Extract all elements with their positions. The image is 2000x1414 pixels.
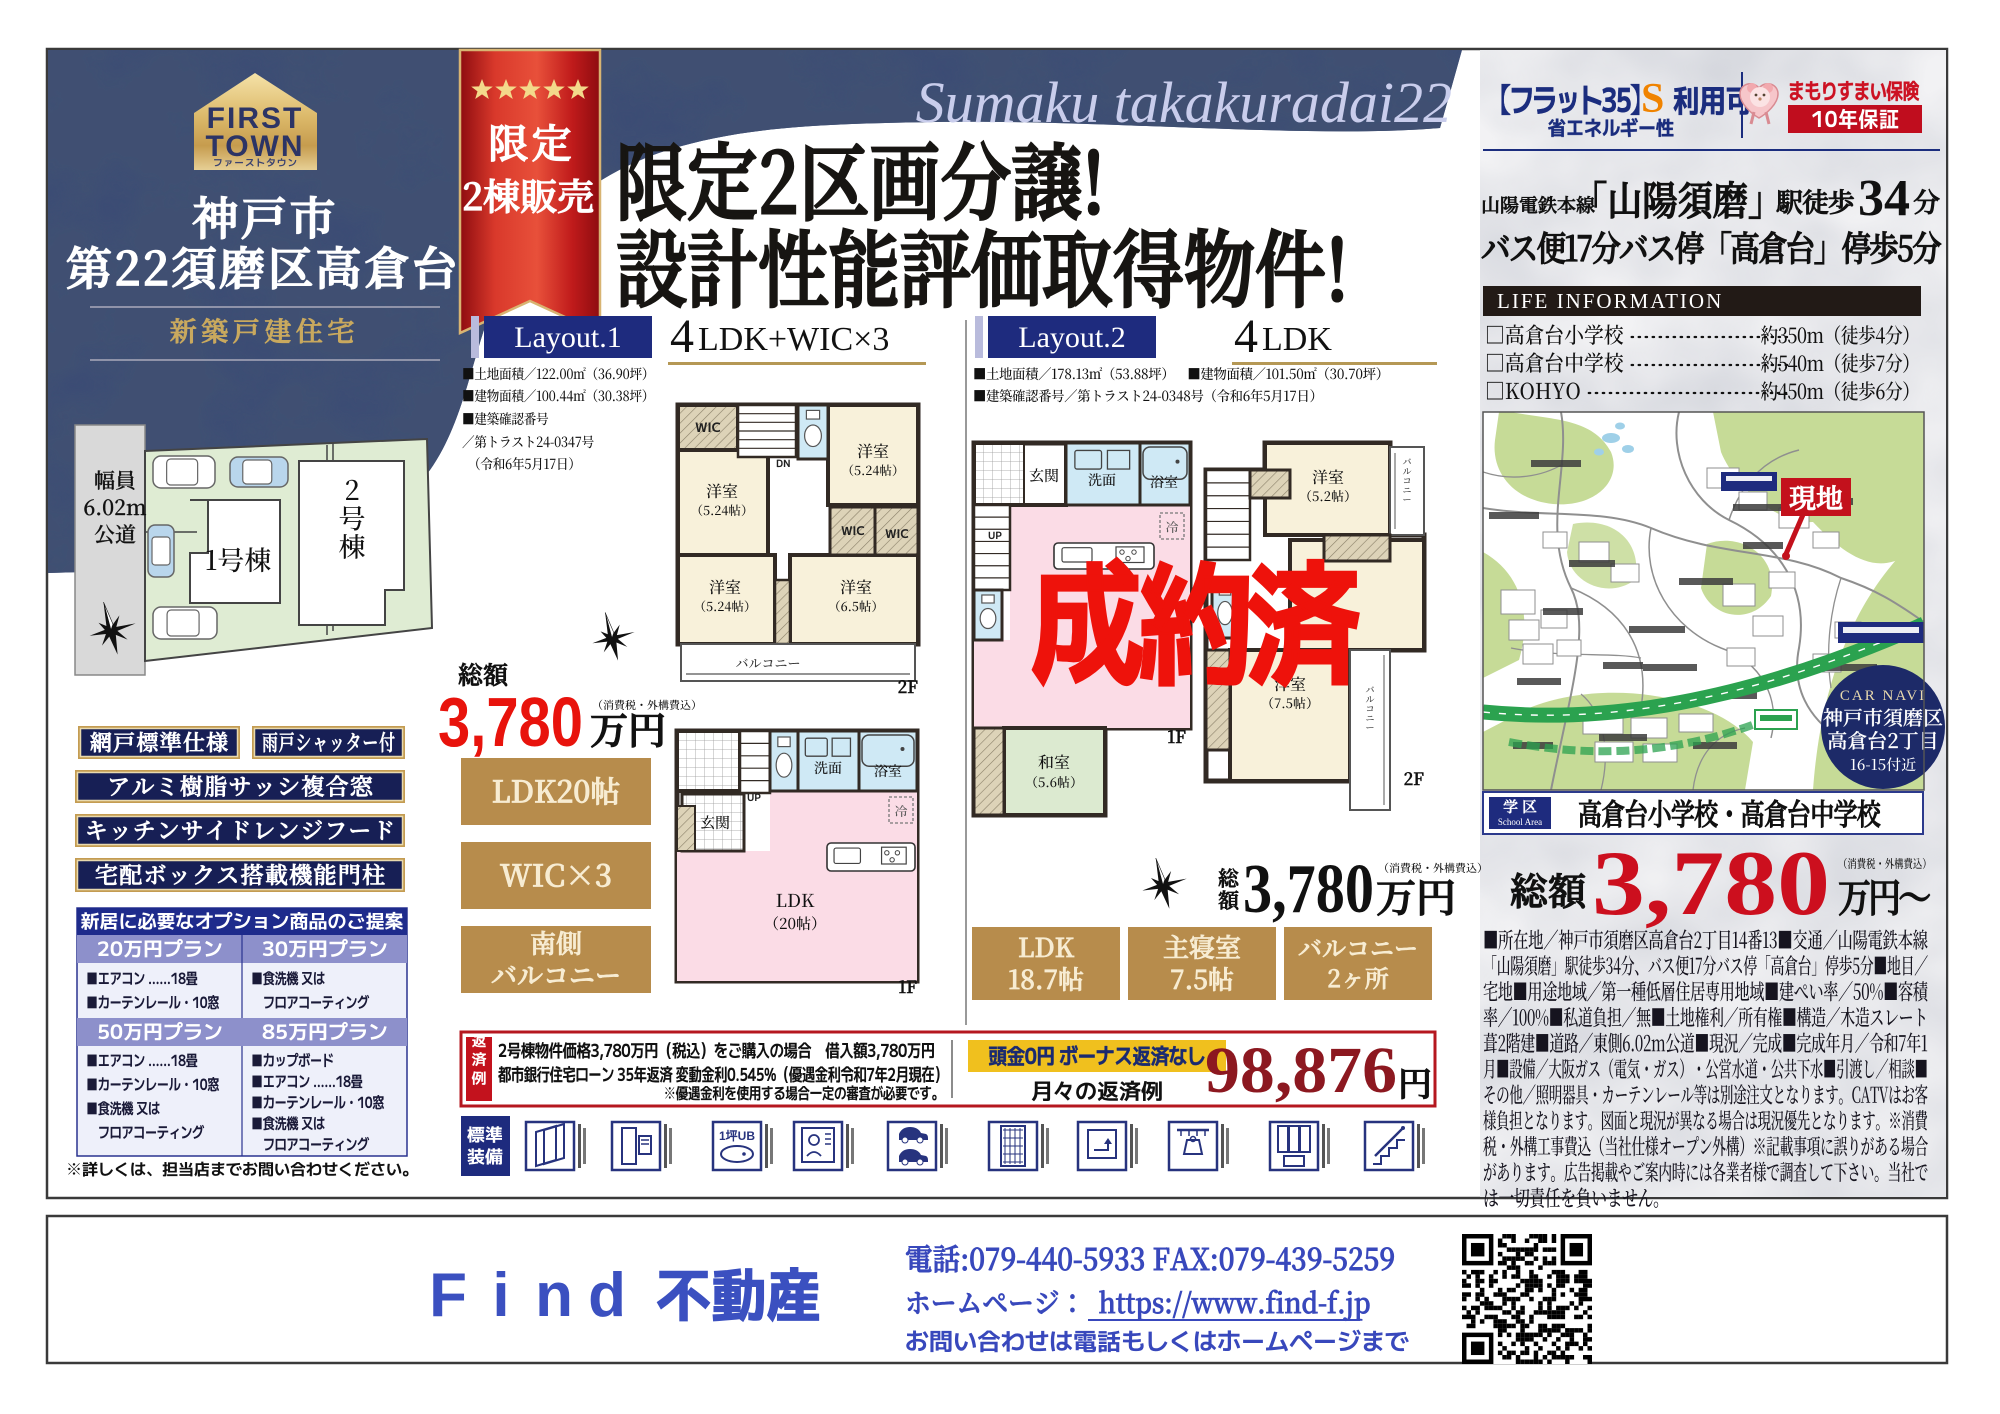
svg-text:d: d [588,1261,626,1330]
svg-text:LDK: LDK [1262,321,1332,358]
svg-text:34: 34 [1858,170,1910,227]
svg-text:Layout.2: Layout.2 [1018,321,1125,354]
svg-text:i: i [492,1261,509,1330]
svg-text:TOWN: TOWN [205,130,304,163]
svg-text:3,780: 3,780 [1243,851,1374,928]
svg-text:Sumaku takakuradai22: Sumaku takakuradai22 [916,70,1452,135]
svg-text:LIFE INFORMATION: LIFE INFORMATION [1497,289,1723,313]
svg-text:4: 4 [1234,310,1258,363]
svg-text:Layout.1: Layout.1 [514,321,621,354]
svg-text:LDK+WIC×3: LDK+WIC×3 [698,321,889,358]
svg-text:F: F [429,1261,467,1330]
svg-text:School Area: School Area [1498,817,1542,827]
svg-text:98,876: 98,876 [1205,1034,1397,1107]
svg-text:1坪UB: 1坪UB [719,1129,755,1143]
svg-text:3,780: 3,780 [438,683,583,761]
svg-text:CAR NAVI: CAR NAVI [1840,688,1926,704]
svg-text:n: n [535,1261,573,1330]
svg-text:4: 4 [670,310,694,363]
svg-text:S: S [1641,76,1664,122]
svg-text:3,780: 3,780 [1592,832,1830,934]
